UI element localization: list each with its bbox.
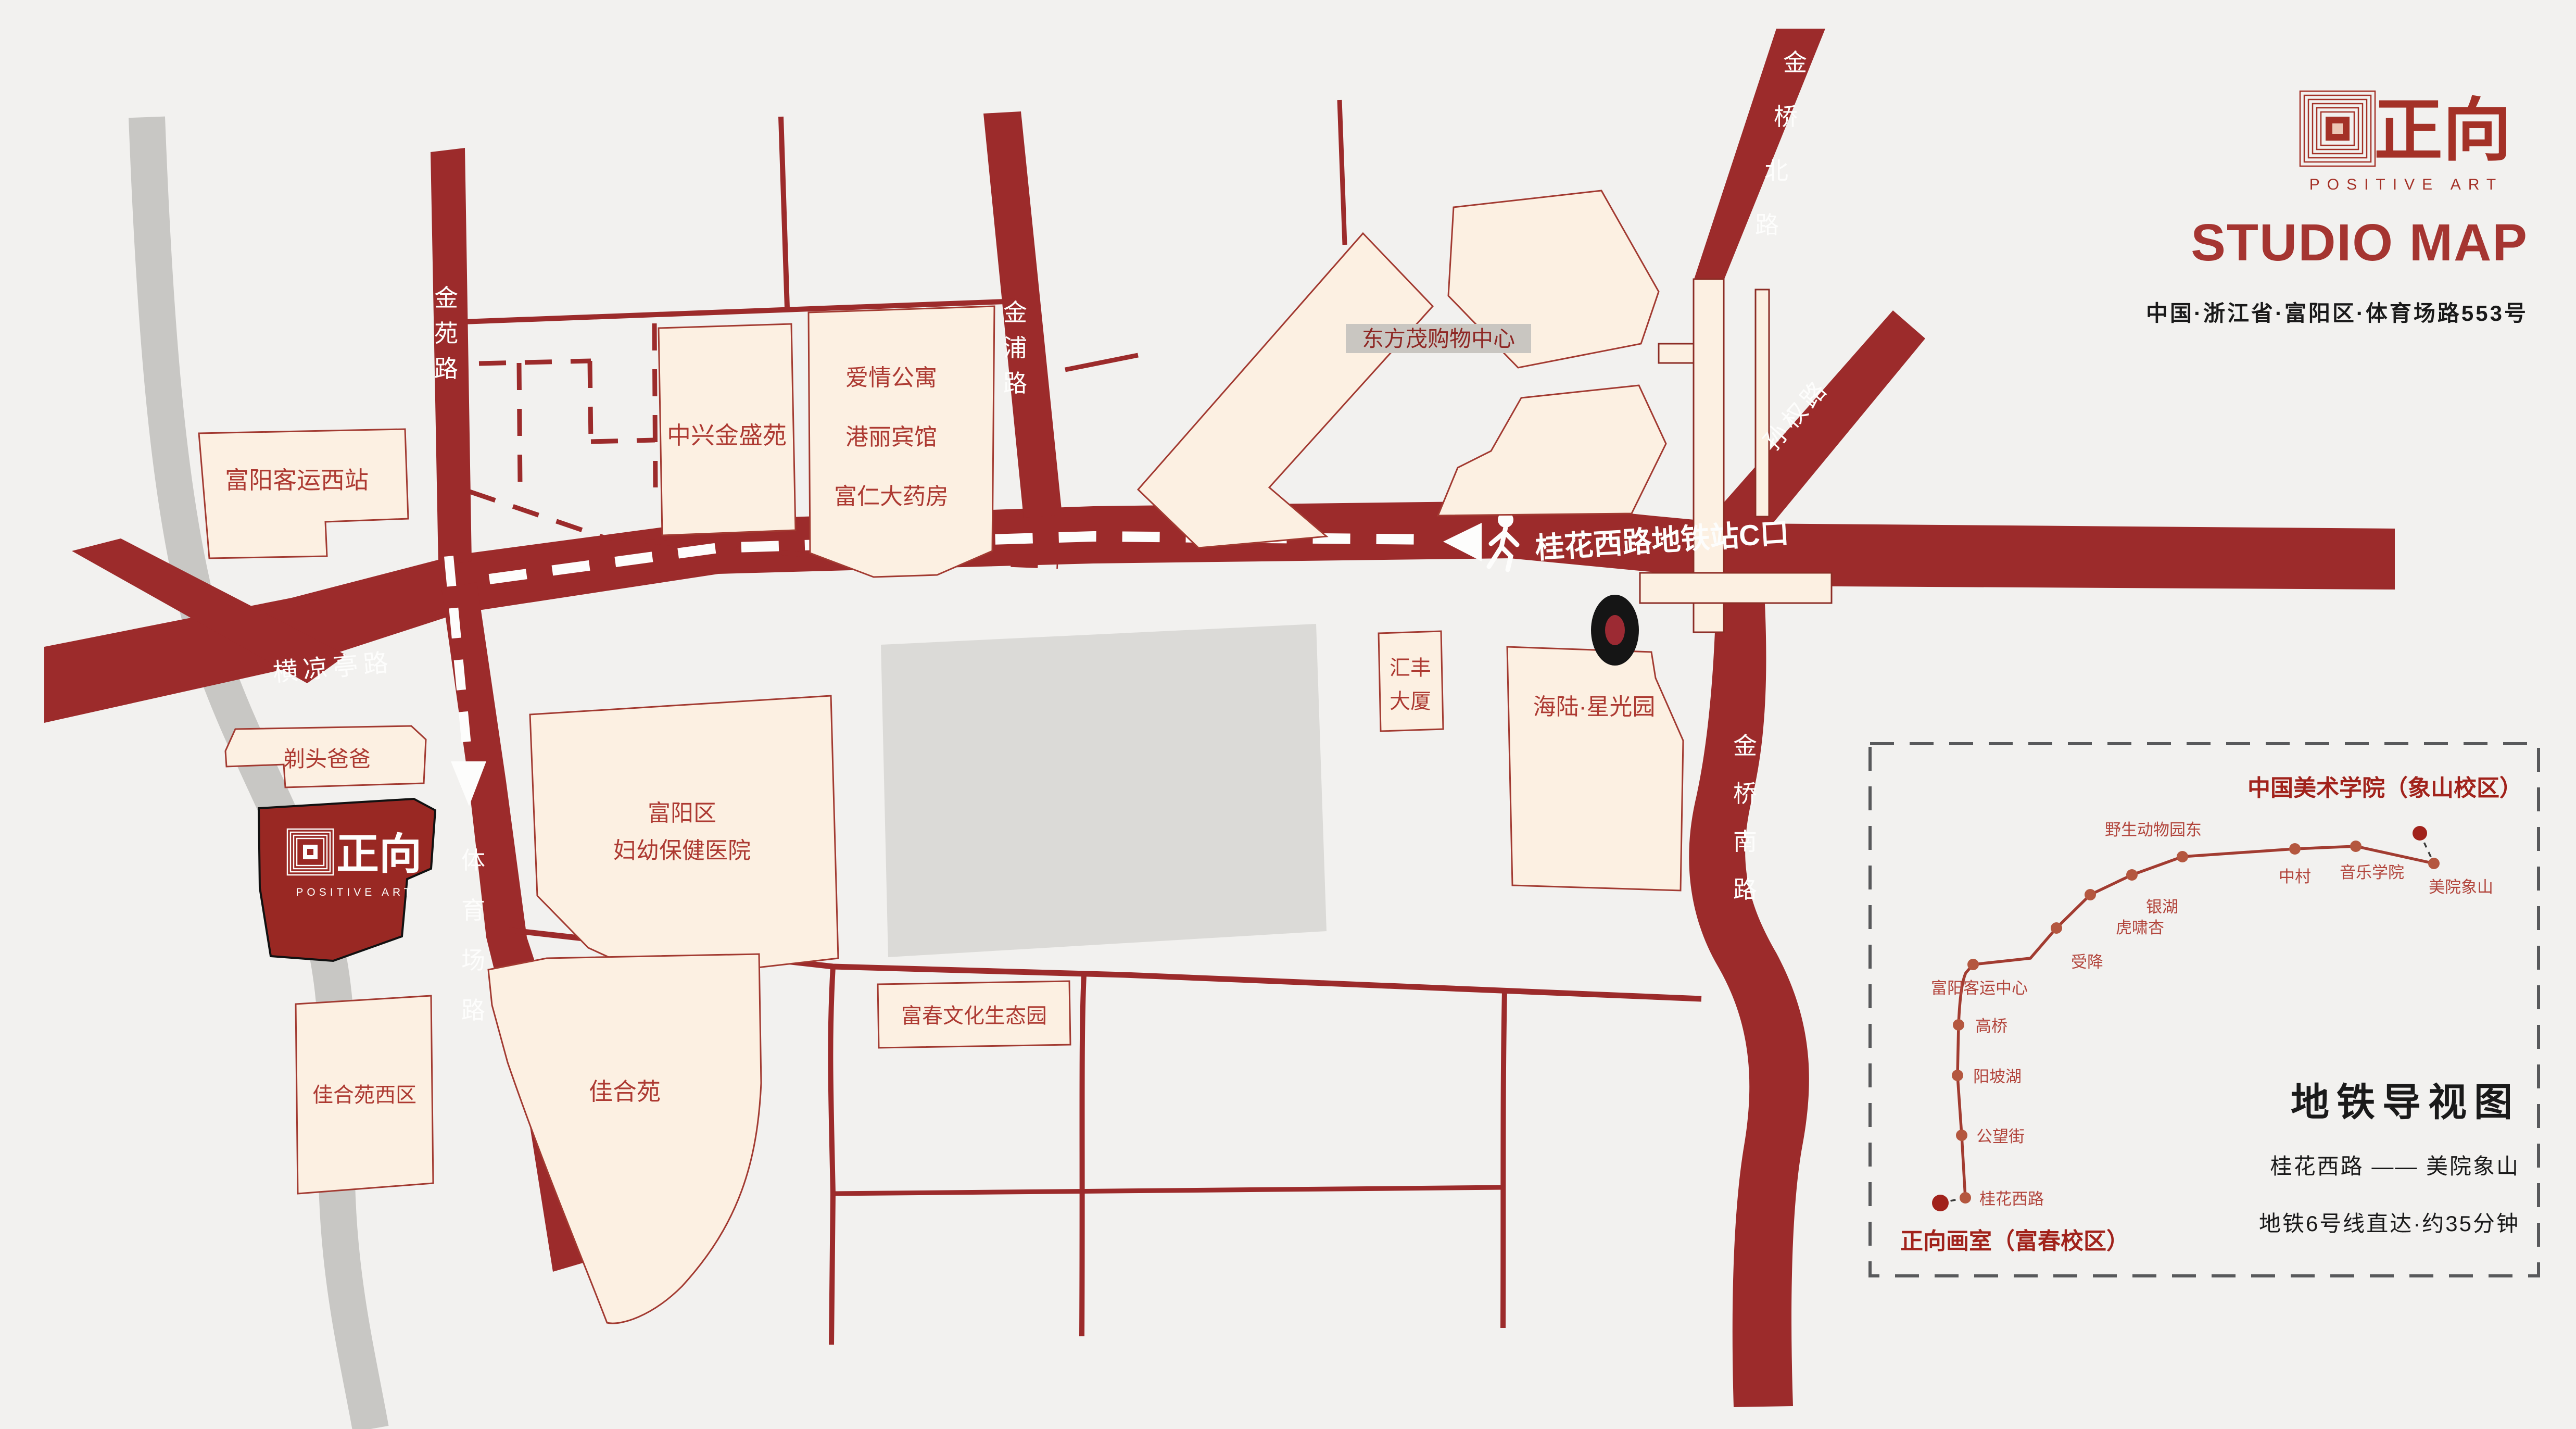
overpass-bar <box>1640 573 1832 603</box>
metro-start-label: 正向画室（富春校区） <box>1900 1228 2129 1254</box>
label-tiyuchang-2: 育 <box>461 897 485 924</box>
label-jinqiao-north-4: 路 <box>1755 211 1779 239</box>
label-huifeng-1: 汇丰 <box>1390 657 1431 680</box>
thin-road-vertical-c <box>1503 991 1505 1328</box>
label-gangli: 港丽宾馆 <box>845 424 937 450</box>
label-hospital-1: 富阳区 <box>648 800 716 826</box>
metro-station-label: 阳坡湖 <box>1973 1068 2022 1086</box>
metro-station-dot <box>2289 843 2301 855</box>
metro-station-dot <box>2177 851 2188 862</box>
studio-logo-square-icon <box>287 829 333 875</box>
metro-station-label: 音乐学院 <box>2340 863 2404 882</box>
terminus-dot-academy <box>2413 826 2427 841</box>
label-jinqiao-north-2: 桥 <box>1774 103 1798 130</box>
metro-station-dot <box>2085 889 2096 900</box>
label-jinyuan-1: 金 <box>434 284 458 311</box>
overpass-spur <box>1756 290 1769 517</box>
label-jinqiao-south-3: 南 <box>1733 828 1757 855</box>
label-jinpu-1: 金 <box>1003 299 1027 326</box>
label-jiaheyuan: 佳合苑 <box>589 1078 661 1105</box>
label-jinqiao-south-2: 桥 <box>1733 780 1757 807</box>
metro-station-dot <box>1952 1070 1963 1081</box>
label-jinpu-3: 路 <box>1003 370 1027 397</box>
metro-station-label: 野生动物园东 <box>2105 821 2202 839</box>
label-titou-baba: 剃头爸爸 <box>283 747 371 771</box>
metro-station-label: 中村 <box>2279 868 2311 886</box>
label-tiyuchang-1: 体 <box>461 847 485 874</box>
gray-field-block <box>881 624 1327 957</box>
metro-station-dot <box>1956 1130 1967 1141</box>
road-boulevard-east <box>1747 523 2395 590</box>
metro-panel-title: 地铁导视图 <box>2291 1081 2520 1124</box>
metro-station-dot <box>1967 959 1979 970</box>
label-tiyuchang-3: 场 <box>461 947 485 974</box>
label-jinqiao-south-4: 路 <box>1733 876 1757 903</box>
label-fuchun-eco-park: 富春文化生态园 <box>901 1005 1047 1027</box>
studio-logo-chinese: 正向 <box>336 831 422 878</box>
building-fuyou-hospital <box>530 696 838 970</box>
metro-station-label: 美院象山 <box>2429 878 2493 896</box>
metro-station-dot <box>2428 858 2440 869</box>
metro-station-label: 受降 <box>2071 953 2103 971</box>
label-jinpu-2: 浦 <box>1003 334 1027 361</box>
studio-logo-english: POSITIVE ART <box>296 886 414 898</box>
metro-end-label: 中国美术学院（象山校区） <box>2247 775 2522 801</box>
building-huifeng <box>1379 631 1443 731</box>
metro-station-dot <box>2350 841 2362 852</box>
dashed-line <box>479 361 591 363</box>
label-fuyang-west-bus-station: 富阳客运西站 <box>225 467 369 494</box>
page-address: 中国·浙江省·富阳区·体育场路553号 <box>2146 301 2528 325</box>
label-huifeng-2: 大厦 <box>1390 690 1431 713</box>
label-tiyuchang-4: 路 <box>461 997 485 1024</box>
metro-station-marker-icon <box>1591 595 1639 666</box>
label-jiaheyuan-west: 佳合苑西区 <box>312 1084 416 1107</box>
dashed-line <box>519 363 520 485</box>
metro-panel-duration: 地铁6号线直达·约35分钟 <box>2259 1211 2520 1236</box>
metro-station-label: 虎啸杏 <box>2116 919 2164 937</box>
label-zhongxing: 中兴金盛苑 <box>667 422 787 449</box>
brand-english: POSITIVE ART <box>2309 176 2504 193</box>
metro-station-dot <box>2126 869 2138 881</box>
label-jinyuan-3: 路 <box>434 355 458 382</box>
label-jinyuan-2: 苑 <box>434 320 458 347</box>
label-jinqiao-north-3: 北 <box>1764 157 1788 184</box>
studio-map-poster: 正向 POSITIVE ART 富阳客运西站 中兴金盛苑 爱情公寓 港丽宾馆 富… <box>0 0 2576 1429</box>
metro-station-label: 富阳客运中心 <box>1931 979 2028 997</box>
building-hailu <box>1507 647 1683 891</box>
terminus-dot-studio <box>1932 1195 1949 1211</box>
metro-station-dot <box>2051 922 2062 934</box>
label-hailu: 海陆·星光园 <box>1533 694 1656 720</box>
label-aiqing: 爱情公寓 <box>845 365 937 391</box>
thin-road-vertical-b <box>1082 975 1084 1336</box>
metro-station-dot <box>1960 1192 1971 1204</box>
thin-road-vertical-a <box>830 967 833 1345</box>
label-hospital-2: 妇幼保健医院 <box>613 838 751 863</box>
metro-station-dot <box>1953 1019 1964 1031</box>
page-title: STUDIO MAP <box>2191 214 2528 272</box>
metro-station-label: 公望街 <box>1976 1127 2025 1146</box>
metro-panel-route: 桂花西路 —— 美院象山 <box>2270 1154 2520 1179</box>
metro-station-label: 银湖 <box>2146 898 2178 916</box>
metro-station-label: 桂花西路 <box>1979 1190 2044 1208</box>
label-furen: 富仁大药房 <box>834 484 949 509</box>
metro-station-label: 高桥 <box>1975 1017 2007 1035</box>
label-dongfangmao: 东方茂购物中心 <box>1362 327 1515 351</box>
overpass-stub <box>1659 344 1694 363</box>
label-jinqiao-south-1: 金 <box>1733 732 1757 759</box>
brand-chinese: 正向 <box>2374 93 2511 169</box>
label-jinqiao-north-1: 金 <box>1783 49 1807 76</box>
